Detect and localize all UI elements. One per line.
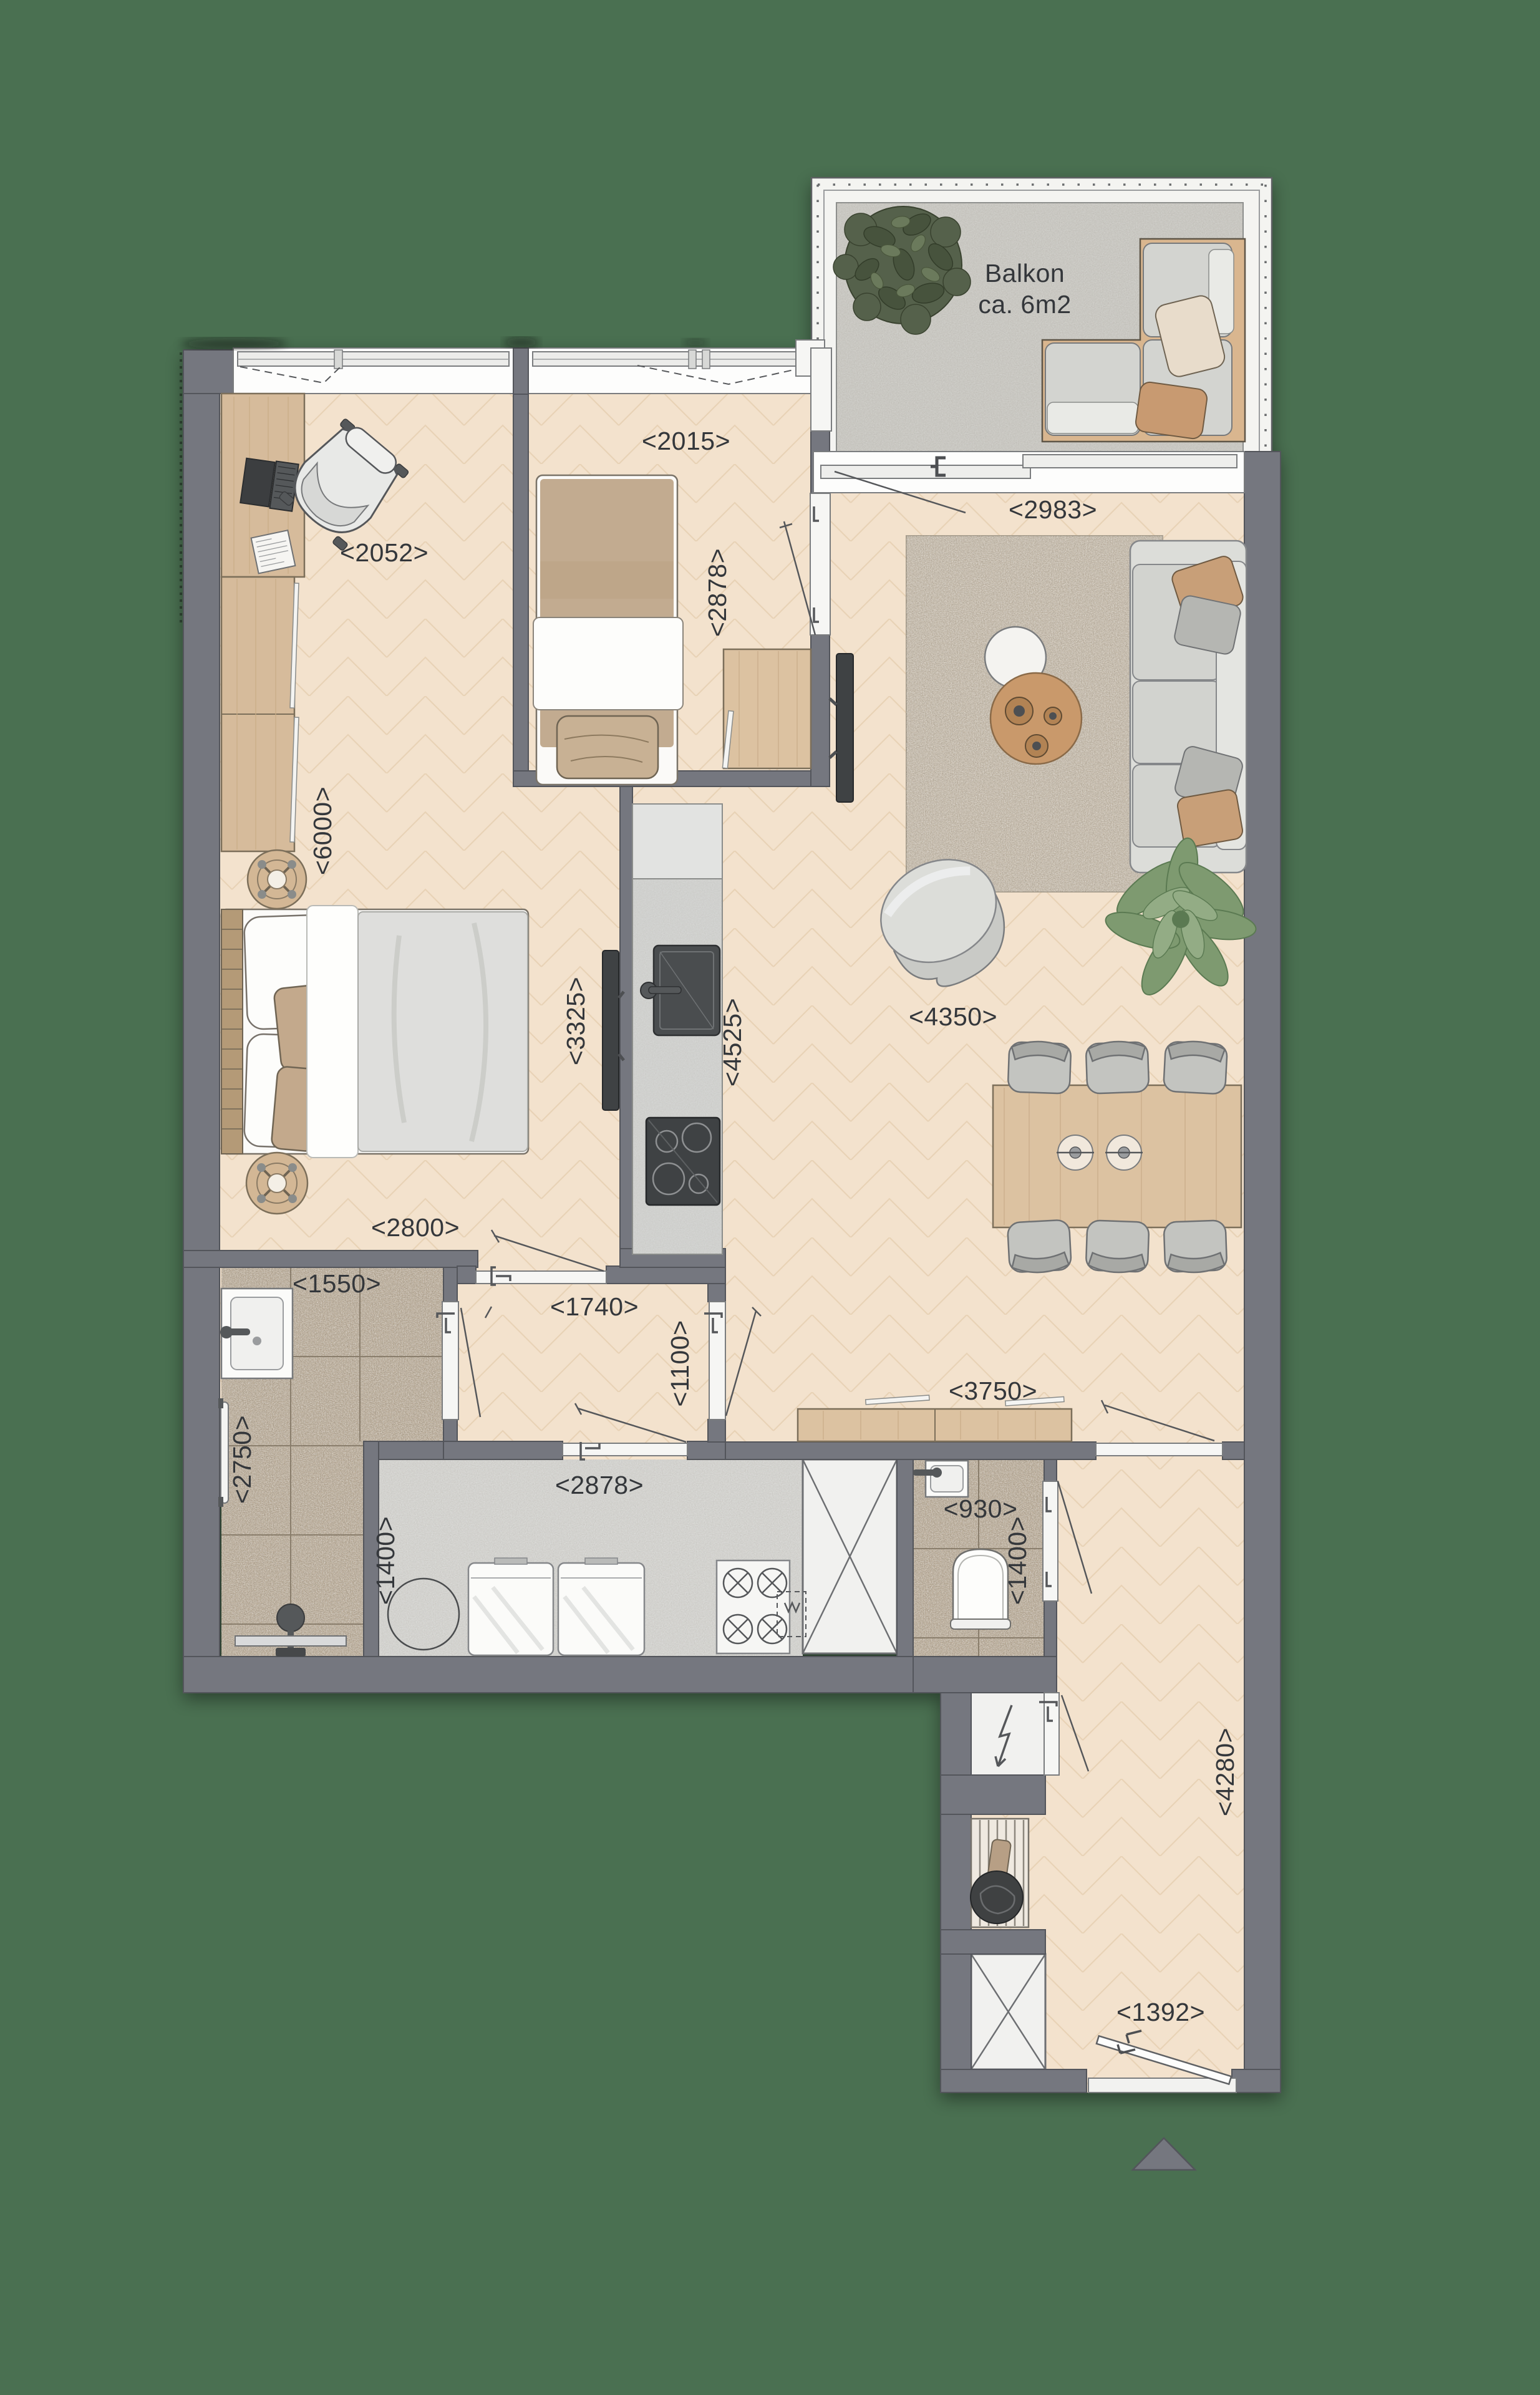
svg-text:<2878>: <2878> [555, 1471, 644, 1499]
svg-text:<2878>: <2878> [703, 548, 732, 637]
svg-text:<3750>: <3750> [949, 1377, 1037, 1405]
svg-text:<6000>: <6000> [308, 786, 337, 875]
svg-text:<4280>: <4280> [1211, 1728, 1239, 1816]
svg-text:Balkon: Balkon [985, 259, 1065, 288]
svg-text:<2015>: <2015> [642, 427, 730, 455]
svg-text:<2800>: <2800> [371, 1213, 460, 1242]
svg-text:<1550>: <1550> [293, 1269, 381, 1298]
svg-text:<3325>: <3325> [561, 977, 590, 1065]
svg-text:<2983>: <2983> [1009, 495, 1097, 524]
svg-text:ca. 6m2: ca. 6m2 [978, 290, 1071, 319]
svg-text:<1392>: <1392> [1116, 1998, 1205, 2026]
svg-text:<1400>: <1400> [1003, 1516, 1032, 1605]
svg-text:<4350>: <4350> [909, 1002, 997, 1031]
svg-text:<1400>: <1400> [371, 1516, 400, 1605]
svg-text:<1100>: <1100> [666, 1320, 694, 1406]
svg-text:<1740>: <1740> [550, 1292, 639, 1321]
svg-text:<4525>: <4525> [718, 998, 747, 1086]
svg-text:<2052>: <2052> [340, 538, 429, 567]
svg-text:<2750>: <2750> [228, 1415, 256, 1504]
